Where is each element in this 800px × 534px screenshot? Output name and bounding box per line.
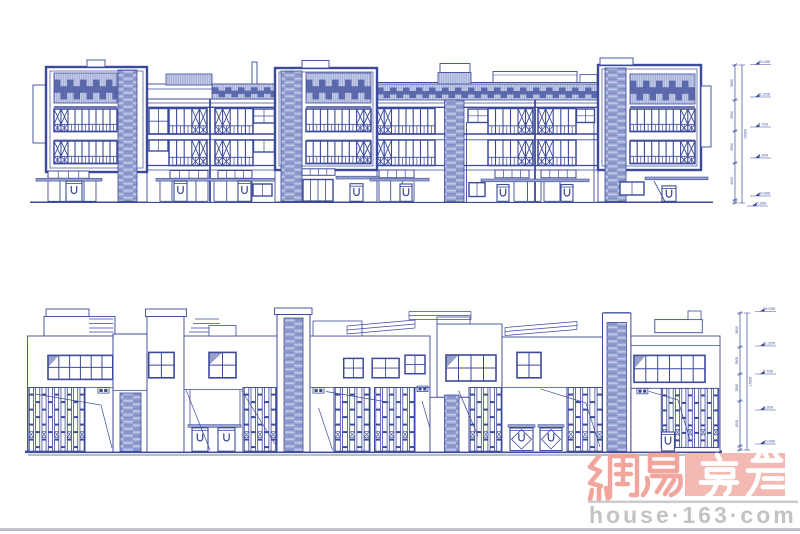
- svg-text:4200: 4200: [730, 177, 734, 185]
- svg-text:3500: 3500: [735, 357, 739, 365]
- svg-text:7.700: 7.700: [763, 369, 774, 374]
- svg-text:-0.300: -0.300: [755, 201, 767, 206]
- svg-text:house·163·com: house·163·com: [589, 502, 797, 528]
- svg-text:3600: 3600: [735, 326, 739, 334]
- svg-text:±0.000: ±0.000: [758, 191, 771, 196]
- svg-text:15300: 15300: [744, 129, 748, 139]
- svg-text:11.200: 11.200: [758, 92, 771, 97]
- svg-text:15300: 15300: [749, 377, 753, 387]
- svg-text:3500: 3500: [730, 143, 734, 151]
- svg-text:4.200: 4.200: [763, 405, 774, 410]
- svg-text:15.000: 15.000: [758, 59, 771, 64]
- svg-text:7.700: 7.700: [758, 122, 769, 127]
- svg-text:±0.000: ±0.000: [763, 439, 776, 444]
- svg-text:3500: 3500: [730, 111, 734, 119]
- svg-text:3500: 3500: [735, 384, 739, 392]
- svg-text:4.200: 4.200: [758, 153, 769, 158]
- svg-text:11.200: 11.200: [763, 341, 776, 346]
- svg-text:4200: 4200: [735, 420, 739, 428]
- svg-text:15.000: 15.000: [763, 306, 776, 311]
- svg-text:3800: 3800: [730, 79, 734, 87]
